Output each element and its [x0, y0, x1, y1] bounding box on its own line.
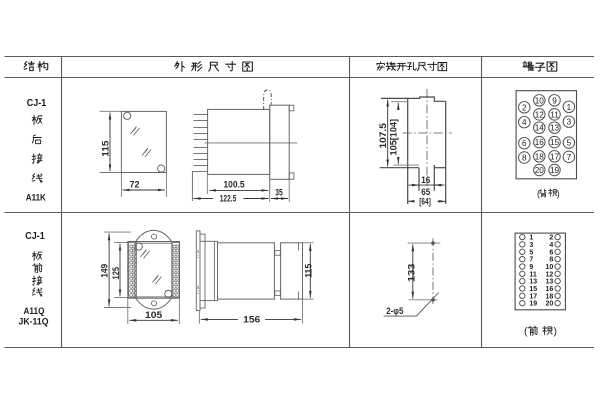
- svg-text:122.5: 122.5: [220, 194, 237, 204]
- svg-text:115: 115: [100, 141, 110, 157]
- svg-text:13: 13: [546, 279, 554, 286]
- svg-text:14: 14: [535, 124, 545, 133]
- svg-text:133: 133: [407, 264, 417, 282]
- svg-text:2: 2: [522, 103, 527, 112]
- svg-text:2: 2: [549, 235, 553, 242]
- svg-text:156: 156: [243, 314, 260, 324]
- svg-text:8: 8: [549, 257, 553, 264]
- svg-text:JK-11Q: JK-11Q: [19, 317, 49, 328]
- svg-text:72: 72: [130, 180, 140, 190]
- svg-text:9: 9: [552, 96, 557, 105]
- svg-text:3: 3: [567, 118, 572, 127]
- svg-text:125: 125: [111, 267, 121, 280]
- svg-text:13: 13: [550, 124, 560, 133]
- svg-text:(: (: [524, 326, 528, 338]
- svg-text:20: 20: [535, 166, 545, 175]
- svg-text:6: 6: [522, 139, 527, 148]
- svg-text:149: 149: [100, 264, 110, 278]
- svg-text:): ): [557, 188, 560, 198]
- svg-text:115: 115: [304, 264, 314, 278]
- svg-text:107.5: 107.5: [378, 123, 388, 148]
- svg-text:7: 7: [529, 257, 533, 264]
- svg-text:CJ-1: CJ-1: [27, 97, 47, 109]
- svg-text:13: 13: [529, 279, 537, 286]
- svg-text:1: 1: [567, 103, 572, 112]
- svg-text:100.5: 100.5: [224, 180, 245, 190]
- svg-text:105[104]: 105[104]: [389, 119, 399, 156]
- svg-text:4: 4: [522, 118, 527, 127]
- svg-text:35: 35: [275, 187, 283, 197]
- svg-text:18: 18: [535, 152, 545, 161]
- svg-text:19: 19: [529, 301, 537, 308]
- svg-text:105: 105: [145, 310, 162, 320]
- svg-text:16: 16: [535, 138, 545, 147]
- svg-text:9: 9: [529, 264, 533, 271]
- svg-text:15: 15: [550, 138, 560, 147]
- svg-text:A11Q: A11Q: [24, 306, 45, 317]
- svg-text:11: 11: [550, 110, 559, 119]
- svg-text:5: 5: [529, 249, 533, 256]
- svg-text:3: 3: [529, 242, 533, 249]
- svg-text:A11K: A11K: [26, 193, 46, 204]
- svg-text:17: 17: [550, 152, 560, 161]
- svg-text:19: 19: [550, 166, 560, 175]
- svg-text:18: 18: [546, 293, 554, 300]
- svg-text:11: 11: [529, 271, 537, 278]
- svg-text:15: 15: [529, 286, 537, 293]
- svg-text:12: 12: [546, 271, 554, 278]
- svg-text:): ): [554, 326, 558, 338]
- svg-text:5: 5: [567, 139, 572, 148]
- svg-text:4: 4: [549, 242, 553, 249]
- svg-text:7: 7: [567, 153, 572, 162]
- svg-text:CJ-1: CJ-1: [25, 230, 45, 242]
- svg-text:20: 20: [546, 301, 554, 308]
- svg-text:16: 16: [546, 286, 554, 293]
- svg-text:16: 16: [421, 175, 430, 185]
- svg-text:6: 6: [549, 249, 553, 256]
- svg-text:2-φ5: 2-φ5: [386, 306, 403, 316]
- svg-text:8: 8: [522, 154, 527, 163]
- svg-text:12: 12: [535, 110, 545, 119]
- svg-text:17: 17: [529, 293, 537, 300]
- svg-text:1: 1: [529, 235, 533, 242]
- svg-text:10: 10: [535, 96, 545, 105]
- svg-text:[64]: [64]: [419, 196, 431, 206]
- svg-text:10: 10: [546, 264, 554, 271]
